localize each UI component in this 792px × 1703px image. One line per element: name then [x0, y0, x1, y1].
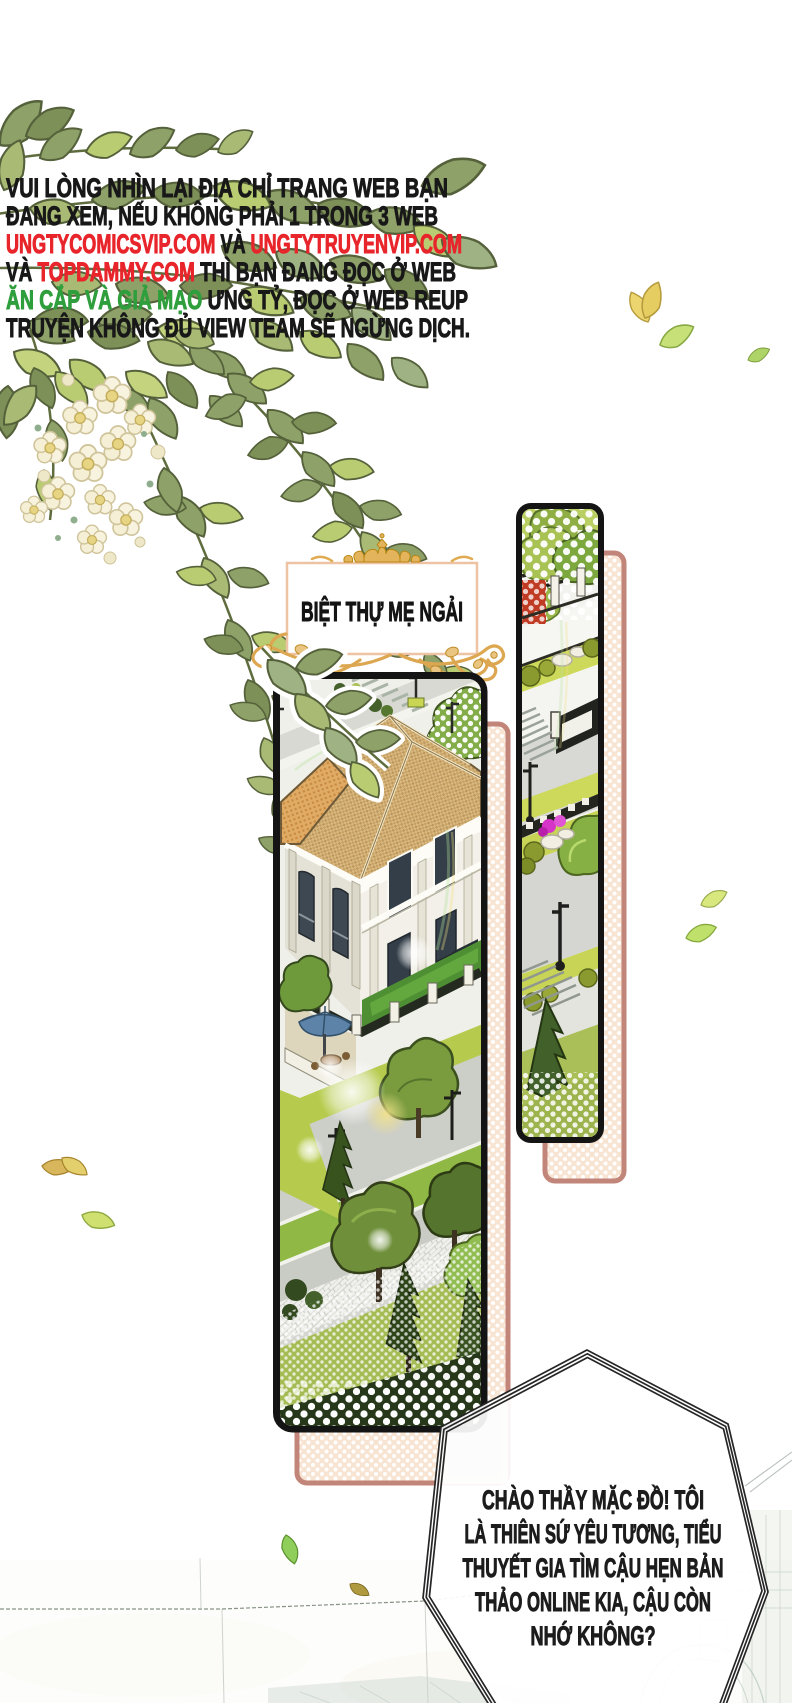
- svg-text:ĐANG XEM, NẾU KHÔNG PHẢI 1 TRO: ĐANG XEM, NẾU KHÔNG PHẢI 1 TRONG 3 WEB: [6, 199, 438, 231]
- svg-text:THUYẾT GIA TÌM CẬU HẸN BẢN: THUYẾT GIA TÌM CẬU HẸN BẢN: [463, 1551, 724, 1583]
- svg-text:VÀ TOPDAMMY.COM THÌ BẠN ĐANG Đ: VÀ TOPDAMMY.COM THÌ BẠN ĐANG ĐỌC Ở WEB: [6, 255, 456, 287]
- svg-text:TRUYỆN KHÔNG ĐỦ VIEW TEAM SẼ N: TRUYỆN KHÔNG ĐỦ VIEW TEAM SẼ NGỪNG DỊCH.: [6, 311, 470, 343]
- svg-text:UNGTYCOMICSVIP.COM VÀ UNGTYTRU: UNGTYCOMICSVIP.COM VÀ UNGTYTRUYENVIP.COM: [6, 228, 462, 259]
- svg-text:CHÀO THẦY MẶC ĐỒ! TÔI: CHÀO THẦY MẶC ĐỒ! TÔI: [482, 1484, 704, 1515]
- svg-text:THẢO ONLINE KIA, CẬU CÒN: THẢO ONLINE KIA, CẬU CÒN: [475, 1585, 711, 1617]
- svg-text:VUI LÒNG NHÌN LẠI ĐỊA CHỈ TRAN: VUI LÒNG NHÌN LẠI ĐỊA CHỈ TRANG WEB BẠN: [6, 171, 448, 203]
- svg-text:NHỚ KHÔNG?: NHỚ KHÔNG?: [531, 1620, 656, 1651]
- svg-text:LÀ THIÊN SỨ YÊU TƯƠNG, TIỂU: LÀ THIÊN SỨ YÊU TƯƠNG, TIỂU: [465, 1518, 722, 1549]
- svg-text:ĂN CẮP VÀ GIẢ MẠO ƯNG TỶ, ĐỌC: ĂN CẮP VÀ GIẢ MẠO ƯNG TỶ, ĐỌC Ở WEB REUP: [6, 283, 468, 315]
- svg-text:BIỆT THỰ MẸ NGẢI: BIỆT THỰ MẸ NGẢI: [301, 595, 463, 627]
